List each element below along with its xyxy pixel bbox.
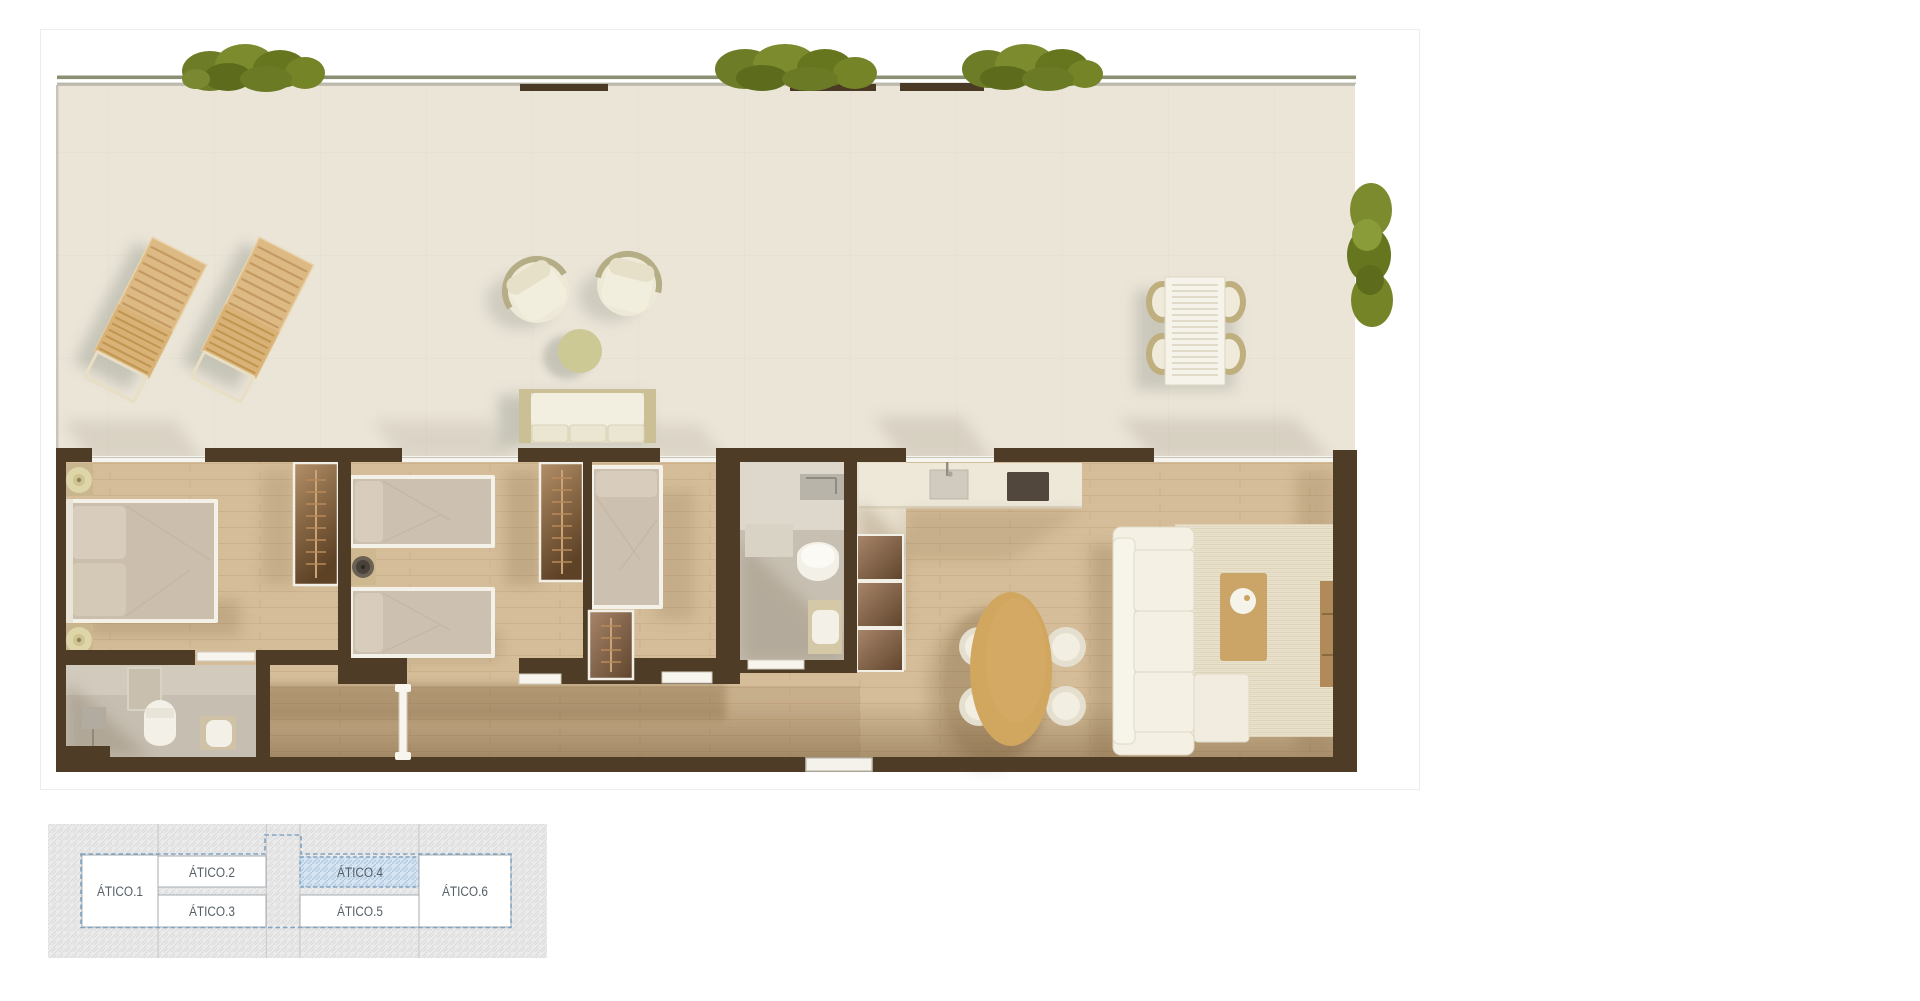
svg-text:ÁTICO.5: ÁTICO.5 [337,904,383,919]
svg-text:ÁTICO.6: ÁTICO.6 [442,884,488,899]
svg-text:ÁTICO.3: ÁTICO.3 [189,904,235,919]
svg-text:ÁTICO.1: ÁTICO.1 [97,884,143,899]
svg-text:ÁTICO.4: ÁTICO.4 [337,865,383,880]
svg-text:ÁTICO.2: ÁTICO.2 [189,865,235,880]
